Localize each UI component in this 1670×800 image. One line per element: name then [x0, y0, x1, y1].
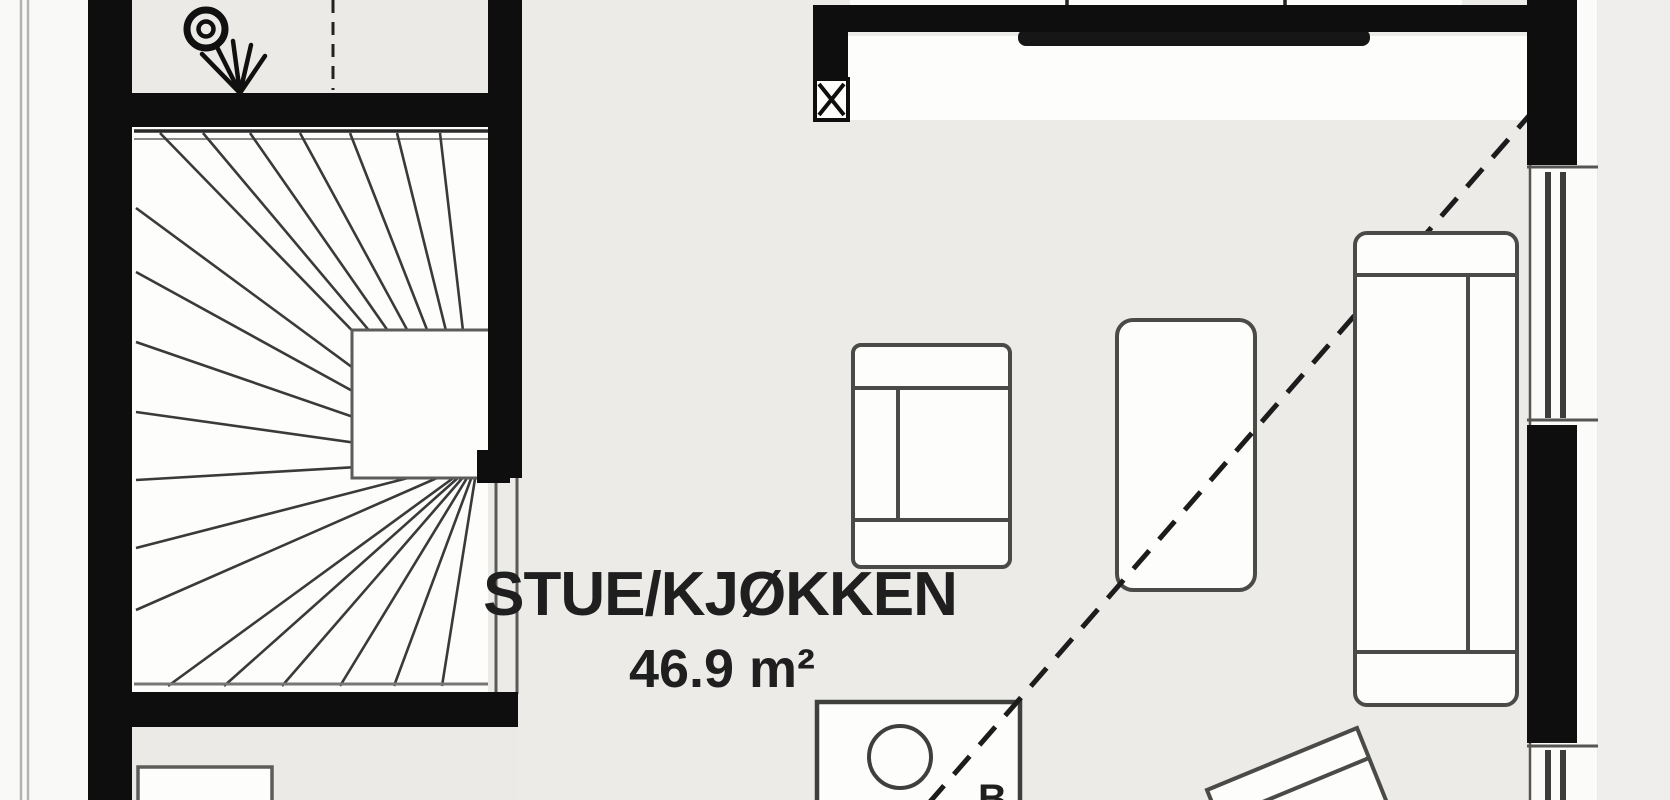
appliance-circle: [869, 726, 931, 788]
bathroom-bottom-wall: [88, 93, 522, 127]
left-margin-strip: [0, 0, 88, 800]
stair-landing: [352, 330, 490, 478]
appliance-box-with-circle: B: [817, 702, 1020, 800]
lower-left-room: [132, 727, 518, 800]
top-wall: [813, 5, 1577, 32]
counter-top: [848, 36, 1527, 120]
x-marker-icon: [815, 79, 848, 120]
stairwell: [132, 127, 490, 692]
right-wall-pier-top: [1527, 0, 1577, 165]
room-area-text: 46.9 m²: [629, 639, 815, 699]
sofa: [1355, 233, 1517, 705]
floor-plan-drawing: B: [0, 0, 1670, 800]
room-name-text: STUE/KJØKKEN: [483, 560, 957, 629]
bathroom-right-wall: [488, 0, 522, 478]
stair-newel-cap: [477, 450, 510, 483]
appliance-letter: B: [978, 777, 1007, 800]
under-counter-fixture: [138, 767, 272, 800]
stair-bottom-wall: [88, 692, 518, 727]
armchair: [853, 345, 1010, 567]
bathroom-floor: [132, 0, 488, 93]
floor-plan-canvas: B: [0, 0, 1670, 800]
bathroom: [132, 0, 488, 93]
kitchen-wall-stub: [813, 28, 848, 79]
wall-outer-gap: [1577, 0, 1597, 800]
right-wall-pier-mid: [1527, 425, 1577, 743]
kitchen-counter: [848, 29, 1527, 120]
coffee-table: [1117, 320, 1255, 590]
